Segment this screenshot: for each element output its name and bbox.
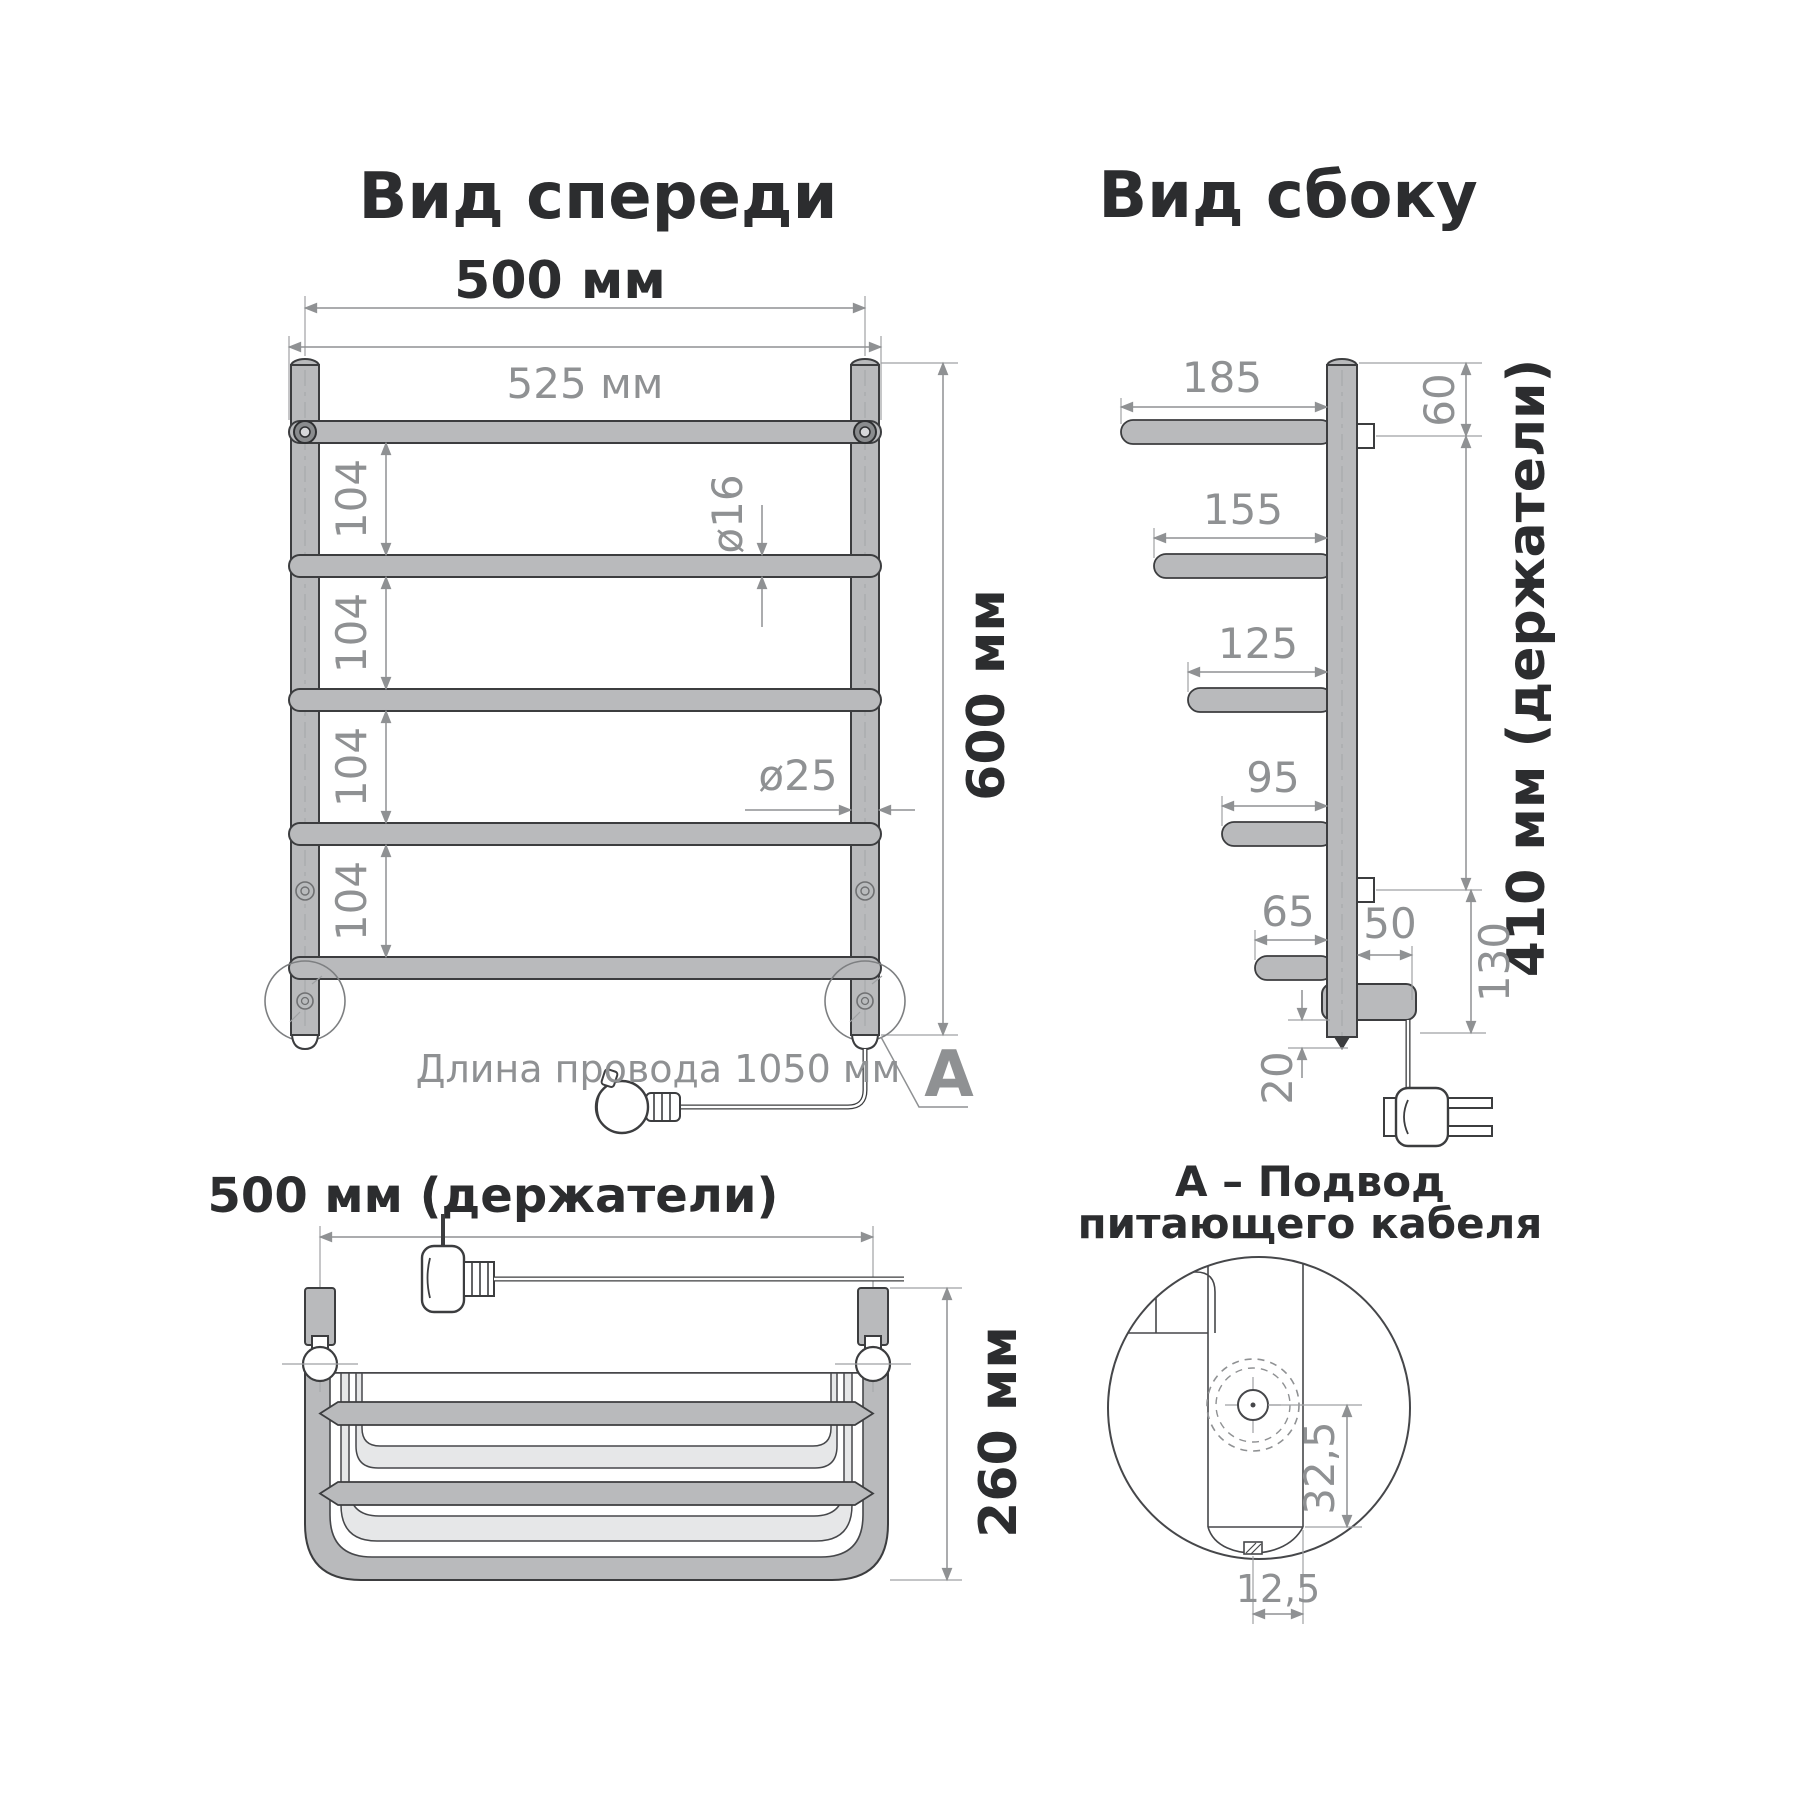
- towel-rail-drawing: Вид спереди 500 мм 525 мм: [0, 0, 1800, 1800]
- dim-o25-label: ø25: [758, 751, 837, 800]
- detail-view: А – Подвод питающего кабеля: [1078, 1157, 1543, 1624]
- front-view-title: Вид спереди: [359, 160, 838, 234]
- mount-screw: [856, 882, 874, 900]
- dim-95-label: 95: [1246, 753, 1299, 802]
- top-offset-dim: 60: [1359, 363, 1482, 436]
- depth-dim: 260 мм: [890, 1288, 1029, 1580]
- arm-155: [1154, 554, 1333, 578]
- dim-104-3: 104: [327, 727, 376, 807]
- dim-130-label: 130: [1470, 922, 1519, 1002]
- dim-104-2: 104: [327, 593, 376, 673]
- arm-125: [1188, 688, 1333, 712]
- dim-600-label: 600 мм: [957, 589, 1017, 801]
- mount-screw: [296, 882, 314, 900]
- dim-185-label: 185: [1182, 353, 1262, 402]
- technical-drawing-page: Вид спереди 500 мм 525 мм: [0, 0, 1800, 1800]
- dim-50-label: 50: [1363, 899, 1416, 948]
- right-pivot-joint: [854, 421, 876, 443]
- post-diameter-dim: ø25: [745, 751, 915, 810]
- rung-bar-bottom: [320, 1482, 873, 1505]
- dim-125-label: 125: [1218, 619, 1298, 668]
- arm-185: [1121, 420, 1333, 444]
- height-dim: 600 мм: [881, 363, 1017, 1035]
- rung-3: [289, 689, 881, 711]
- cable-gland-hatch: [1244, 1542, 1262, 1554]
- side-view-title: Вид сбоку: [1098, 159, 1477, 233]
- dim-20-label: 20: [1253, 1051, 1302, 1104]
- dim-260-label: 260 мм: [969, 1326, 1029, 1538]
- detail-caption-line2: питающего кабеля: [1078, 1199, 1543, 1248]
- arm-95: [1222, 822, 1333, 846]
- dim-o16-label: ø16: [703, 474, 752, 553]
- wall-bracket-stub-top: [1357, 424, 1374, 448]
- dim-104-1: 104: [327, 459, 376, 539]
- side-view: Вид сбоку 185 155 125: [1098, 159, 1557, 1146]
- front-dim-525-label: 525 мм: [507, 359, 664, 408]
- dim-60-label: 60: [1415, 373, 1464, 426]
- left-pivot-joint: [294, 421, 316, 443]
- top-plug-icon: [422, 1214, 904, 1312]
- detail-marker-a: A: [924, 1038, 974, 1112]
- right-foot-cap: [292, 1035, 318, 1049]
- side-plug-icon: [1384, 1088, 1492, 1146]
- cable-length-label: Длина провода 1050 мм: [416, 1047, 901, 1091]
- dim-12-5-label: 12,5: [1236, 1567, 1321, 1611]
- top-view-title: 500 мм (держатели): [208, 1168, 779, 1224]
- dim-32-5-label: 32,5: [1295, 1421, 1344, 1515]
- rung-2: [289, 555, 881, 577]
- top-view: 500 мм (держатели): [208, 1168, 1029, 1580]
- rung-1: [289, 421, 881, 443]
- rung-5: [289, 957, 881, 979]
- arm-65: [1255, 956, 1333, 980]
- rung-bar-top: [320, 1402, 873, 1425]
- dim-104-4: 104: [327, 861, 376, 941]
- dim-155-label: 155: [1203, 485, 1283, 534]
- front-view: Вид спереди 500 мм 525 мм: [265, 160, 1017, 1133]
- bracket-span-dim: 410 мм (держатели): [1376, 359, 1557, 978]
- dim-65-label: 65: [1261, 887, 1314, 936]
- front-dim-500-label: 500 мм: [454, 251, 666, 311]
- rung-4: [289, 823, 881, 845]
- rung-diameter-dim: ø16: [703, 474, 762, 627]
- rail-u-nest: [305, 1373, 888, 1580]
- dim-410-label: 410 мм (держатели): [1497, 359, 1557, 978]
